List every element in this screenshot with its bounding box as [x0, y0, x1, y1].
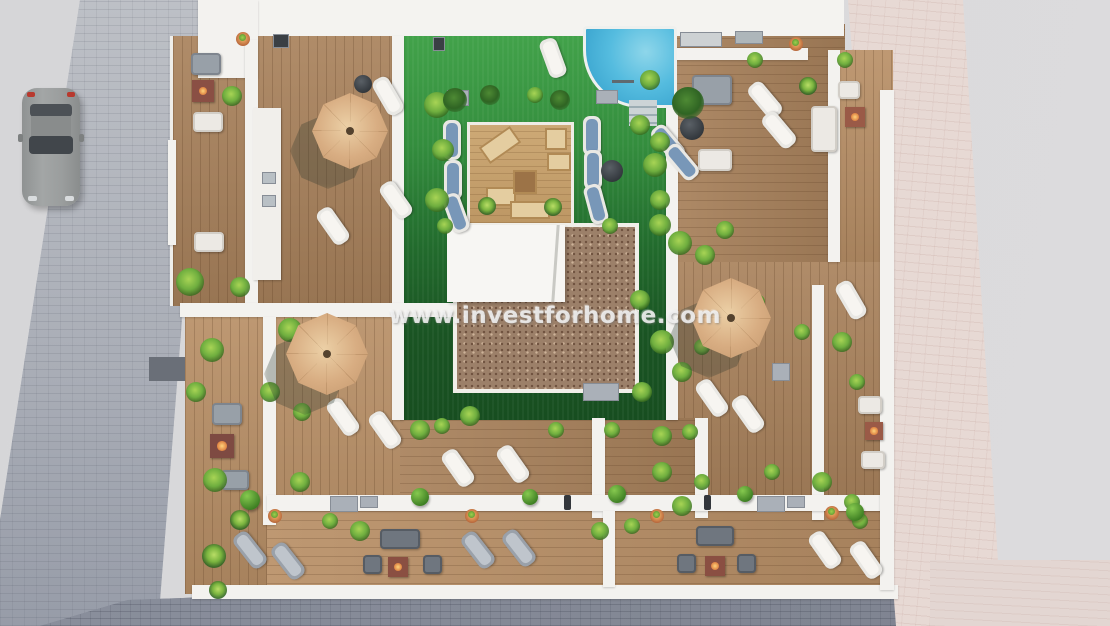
plant — [849, 374, 865, 390]
plant — [591, 522, 609, 540]
entrance-mat — [149, 357, 187, 381]
utility-box — [262, 172, 276, 184]
outdoor-sofa — [363, 555, 382, 574]
plant — [602, 218, 618, 234]
plant — [203, 468, 227, 492]
plant — [716, 221, 734, 239]
plant — [230, 277, 250, 297]
round-table — [680, 116, 704, 140]
utility-box — [757, 496, 785, 512]
plant — [812, 472, 832, 492]
utility-box — [772, 363, 790, 381]
plant — [799, 77, 817, 95]
utility-box — [583, 383, 619, 401]
plant — [640, 70, 660, 90]
plant — [290, 472, 310, 492]
car-headlight — [28, 196, 37, 201]
utility-box — [262, 195, 276, 207]
sunbathing-mat — [545, 128, 567, 150]
white-roof-block — [447, 225, 565, 302]
plant — [682, 424, 698, 440]
parked-car — [22, 88, 80, 206]
platform-table — [513, 170, 537, 194]
plant — [550, 90, 570, 110]
plant — [650, 330, 674, 354]
utility-box — [360, 496, 378, 508]
fire-pit-table — [865, 422, 883, 440]
outdoor-sofa — [191, 53, 221, 75]
plant — [672, 87, 704, 119]
plant — [650, 190, 670, 210]
partition-wall — [880, 90, 894, 590]
aerial-property-render: www.investforhome.com — [0, 0, 1110, 626]
watermark: www.investforhome.com — [389, 303, 721, 329]
outdoor-sofa — [212, 403, 242, 425]
wall-post — [564, 495, 571, 510]
plant — [632, 382, 652, 402]
plant — [432, 139, 454, 161]
plant — [186, 382, 206, 402]
outdoor-sofa — [194, 232, 224, 252]
plant — [604, 422, 620, 438]
fire-pit-table — [210, 434, 234, 458]
plant — [176, 268, 204, 296]
car-headlight — [65, 196, 74, 201]
outdoor-sofa — [380, 529, 420, 549]
plant — [643, 153, 667, 177]
partition-wall — [263, 317, 276, 525]
partition-wall — [168, 140, 176, 245]
plant — [694, 474, 710, 490]
topiary-ball — [737, 486, 753, 502]
plant — [460, 406, 480, 426]
topiary-ball — [411, 488, 429, 506]
plant — [202, 544, 226, 568]
plant — [794, 324, 810, 340]
car-roof — [31, 116, 71, 137]
outdoor-sofa — [677, 554, 696, 573]
car-mirror — [18, 134, 23, 142]
plant — [649, 214, 671, 236]
flower-pot — [650, 509, 664, 523]
outdoor-sofa — [861, 451, 885, 469]
plant — [478, 197, 496, 215]
utility-box — [787, 496, 805, 508]
plant — [480, 85, 500, 105]
wall-post — [704, 495, 711, 510]
fire-pit-table — [705, 556, 725, 576]
plant — [443, 88, 467, 112]
plant — [624, 518, 640, 534]
balcony-strip-deck — [267, 505, 893, 593]
plant — [650, 132, 670, 152]
flower-pot — [236, 32, 250, 46]
utility-box — [596, 90, 618, 104]
plant — [672, 496, 692, 516]
partition-wall — [192, 585, 898, 599]
outdoor-sofa — [423, 555, 442, 574]
round-table — [354, 75, 372, 93]
plant — [630, 115, 650, 135]
plant — [544, 198, 562, 216]
plant — [668, 231, 692, 255]
outdoor-sofa — [696, 526, 734, 546]
utility-box — [330, 496, 358, 512]
flower-pot — [825, 506, 839, 520]
partition-wall — [668, 48, 808, 60]
plant — [434, 418, 450, 434]
plant — [832, 332, 852, 352]
utility-box — [273, 34, 289, 48]
sidewalk-corner-pink — [930, 560, 1110, 626]
fire-pit-table — [388, 557, 408, 577]
outdoor-bar-counter — [253, 108, 281, 280]
plant — [230, 510, 250, 530]
utility-box — [735, 31, 763, 44]
topiary-ball — [240, 490, 260, 510]
car-taillight — [27, 92, 35, 97]
topiary-ball — [522, 489, 538, 505]
topiary-ball — [608, 485, 626, 503]
plant — [548, 422, 564, 438]
sunbathing-mat — [547, 153, 571, 171]
plant — [222, 86, 242, 106]
flower-pot — [465, 509, 479, 523]
car-mirror — [79, 134, 84, 142]
plant — [527, 87, 543, 103]
outdoor-sofa — [858, 396, 882, 414]
plant — [209, 581, 227, 599]
topiary-ball — [846, 503, 864, 521]
fire-pit-table — [845, 107, 865, 127]
utility-box — [680, 32, 722, 47]
plant — [425, 188, 449, 212]
round-table — [601, 160, 623, 182]
plant — [837, 52, 853, 68]
outdoor-sofa — [698, 149, 732, 171]
plant — [747, 52, 763, 68]
car-windshield — [29, 136, 73, 154]
car-taillight — [67, 92, 75, 97]
plant — [695, 245, 715, 265]
plant — [350, 521, 370, 541]
plant — [200, 338, 224, 362]
plant — [322, 513, 338, 529]
outdoor-sofa — [838, 81, 860, 99]
outdoor-sofa — [193, 112, 223, 132]
flower-pot — [268, 509, 282, 523]
plant — [410, 420, 430, 440]
pool-ladder — [612, 80, 634, 83]
plant — [652, 462, 672, 482]
flower-pot — [789, 37, 803, 51]
plant — [764, 464, 780, 480]
fire-pit-table — [192, 80, 214, 102]
outdoor-sofa — [811, 106, 837, 152]
plant — [437, 218, 453, 234]
plant — [652, 426, 672, 446]
utility-box — [433, 37, 445, 51]
outdoor-sofa — [737, 554, 756, 573]
